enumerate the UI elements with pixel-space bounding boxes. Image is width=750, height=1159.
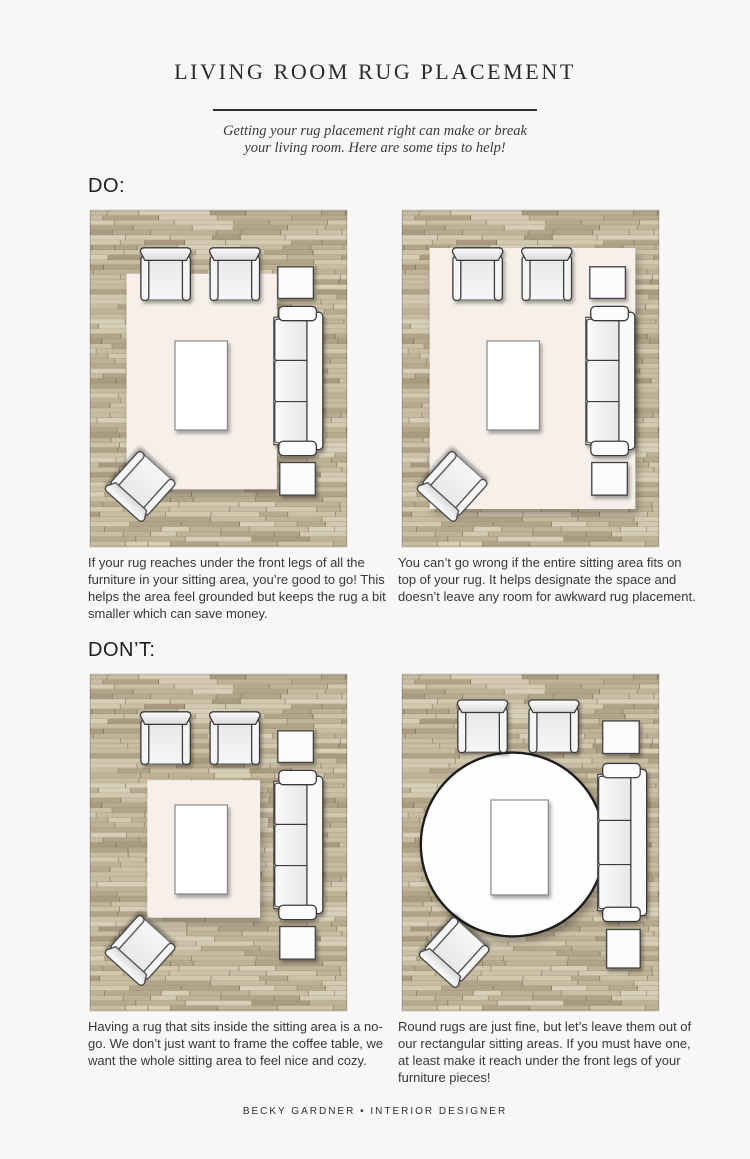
side-table [280, 463, 316, 496]
armchair [452, 248, 502, 301]
armchair [529, 700, 579, 753]
subtitle-line-1: Getting your rug placement right can mak… [0, 123, 750, 140]
floor-plan-svg [90, 210, 347, 547]
subtitle-line-2: your living room. Here are some tips to … [0, 140, 750, 157]
caption-dont-2: Round rugs are just fine, but let’s leav… [398, 1018, 700, 1086]
armchair [457, 700, 507, 753]
sofa [586, 306, 635, 455]
side-table [603, 721, 640, 754]
sofa [274, 770, 323, 919]
armchair [210, 712, 260, 765]
armchair [140, 712, 190, 765]
caption-dont-1: Having a rug that sits inside the sittin… [88, 1018, 390, 1069]
coffee-table [175, 805, 227, 894]
side-table [590, 267, 626, 299]
floor-plan-do-entire-area-on-rug [402, 210, 659, 547]
side-table [607, 929, 641, 968]
title-divider [213, 109, 537, 111]
coffee-table [487, 341, 539, 430]
page-subtitle: Getting your rug placement right can mak… [0, 123, 750, 157]
designer-credit: BECKY GARDNER • INTERIOR DESIGNER [0, 1106, 750, 1117]
side-table [592, 463, 628, 496]
armchair [210, 248, 260, 301]
floor-plan-svg [402, 674, 659, 1011]
sofa [598, 763, 647, 921]
floor-plan-svg [90, 674, 347, 1011]
armchair [140, 248, 190, 301]
coffee-table [175, 341, 227, 430]
side-table [278, 267, 314, 299]
section-label-dont: DON’T: [88, 639, 155, 662]
page-title: LIVING ROOM RUG PLACEMENT [0, 59, 750, 85]
floor-plan-dont-round-rug [402, 674, 659, 1011]
floor-plan-do-under-front-legs [90, 210, 347, 547]
coffee-table [491, 800, 548, 895]
sofa [274, 306, 323, 455]
side-table [280, 927, 316, 960]
floor-plan-dont-rug-inside-area [90, 674, 347, 1011]
caption-do-2: You can’t go wrong if the entire sitting… [398, 554, 700, 605]
section-label-do: DO: [88, 175, 125, 198]
caption-do-1: If your rug reaches under the front legs… [88, 554, 390, 622]
side-table [278, 731, 314, 763]
armchair [522, 248, 572, 301]
floor-plan-svg [402, 210, 659, 547]
